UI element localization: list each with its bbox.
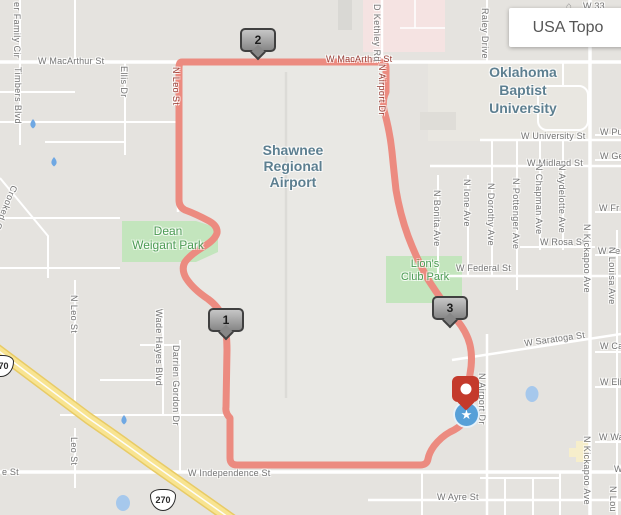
street-label: W Fr [599,203,619,213]
street-label: N Leo St [69,295,79,333]
street-label: N Pottenger Ave [511,178,521,249]
street-label: W Ayre St [437,492,479,502]
building [569,448,577,457]
university-place-label: Oklahoma Baptist University [470,63,576,117]
highway-us270 [0,346,238,515]
street-label: N Louisa Ave [607,247,617,305]
street-label: W Independence St [188,468,270,478]
route-marker-3[interactable]: 3 [432,296,468,320]
street-label: N Dorothy Ave [486,183,496,246]
street-label: Wade Hayes Blvd [154,309,164,386]
street-label: W MacArthur St [326,54,392,64]
street-label: W Ca [600,341,621,351]
street-label: N Lou [608,486,618,512]
street-label: N Leo St [171,67,181,105]
street-label: N Chapman Ave [534,164,544,235]
route-marker-3-label: 3 [447,301,454,315]
street-label: W Ge [600,151,621,161]
street-label: N Ione Ave [462,179,472,227]
street-label: W Eli [600,377,621,387]
route-marker-1[interactable]: 1 [208,308,244,332]
street-label: W [614,464,621,474]
street-label: D Kethley Rd [372,4,382,62]
street-label: e St [2,467,19,477]
building [420,112,456,130]
street-label: W Pu [600,127,621,137]
route-marker-2-label: 2 [255,33,262,47]
street-label: N Bonita Ave [432,190,442,247]
lions-club-park-label: Lion's Club Park [386,258,464,284]
street-label: N Airport Dr [377,64,387,116]
airport-place-label: Shawnee Regional Airport [240,142,346,190]
route-marker-2[interactable]: 2 [240,28,276,52]
map-canvas[interactable]: 270 270 W MacArthur St W MacArthur St W … [0,0,621,515]
street-label: N Kickapoo Ave [582,224,592,293]
street-label: W Rosa St [540,237,585,247]
street-label: er Family Cir [12,2,22,58]
dean-weigant-park-label: Dean Weigant Park [120,224,216,252]
street-label: N Kickapoo Ave [582,436,592,505]
route-end-pin[interactable] [452,376,479,402]
street-label: W Federal St [456,263,511,273]
street-label: Raley Drive [480,8,490,59]
street-label: Timbers Blvd [13,67,23,124]
street-label: W University St [521,131,586,141]
street-label: Leo St [69,437,79,465]
usa-topo-layer-button[interactable]: USA Topo [509,8,621,47]
street-label: Ellis Dr [119,66,129,98]
street-label: W MacArthur St [38,56,104,66]
street-label: N Aydelotte Ave [557,164,567,233]
street-label: Darrien Gordon Dr [171,345,181,426]
route-marker-1-label: 1 [223,313,230,327]
street-label: W Wa [599,432,621,442]
building [338,0,352,30]
